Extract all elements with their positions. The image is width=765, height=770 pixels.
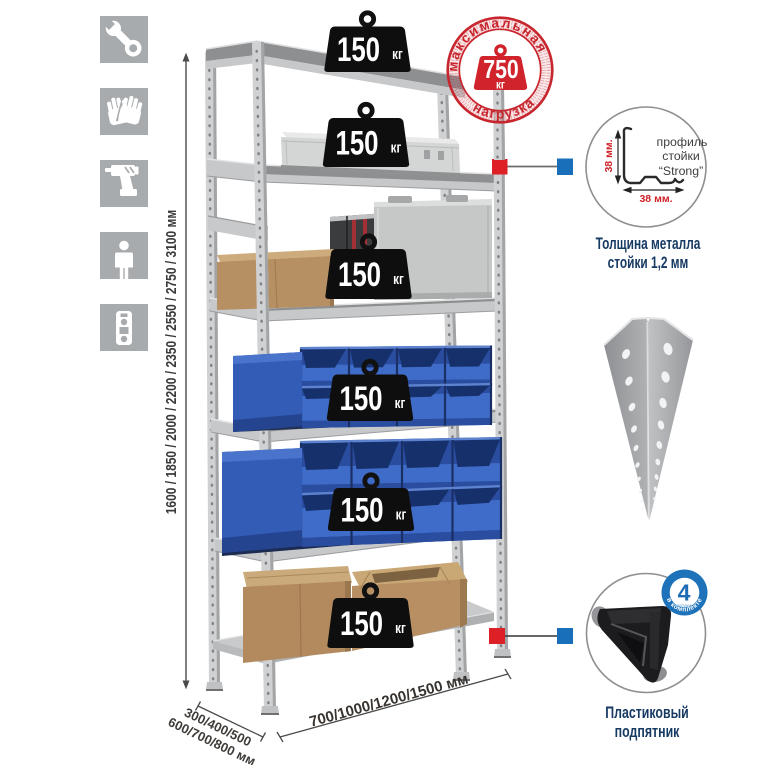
svg-text:1600 / 1850 / 2000 / 2200 / 23: 1600 / 1850 / 2000 / 2200 / 2350 / 2550 … xyxy=(163,210,180,515)
svg-text:150: 150 xyxy=(339,381,382,418)
svg-text:кг: кг xyxy=(395,620,406,637)
svg-text:4: 4 xyxy=(678,580,691,606)
svg-text:150: 150 xyxy=(338,257,381,294)
svg-text:профиль: профиль xyxy=(657,135,708,149)
svg-text:Толщина металла: Толщина металла xyxy=(596,235,702,253)
svg-text:кг: кг xyxy=(496,79,505,92)
svg-text:150: 150 xyxy=(335,125,378,162)
svg-text:кг: кг xyxy=(391,139,402,156)
svg-text:кг: кг xyxy=(396,506,407,523)
svg-text:150: 150 xyxy=(337,32,380,69)
svg-text:стойки: стойки xyxy=(662,149,700,163)
svg-text:“Strong”: “Strong” xyxy=(659,164,703,178)
svg-text:150: 150 xyxy=(340,492,383,529)
svg-text:стойки 1,2 мм: стойки 1,2 мм xyxy=(608,254,689,272)
svg-text:кг: кг xyxy=(393,271,404,288)
svg-text:38 мм.: 38 мм. xyxy=(603,139,615,172)
svg-text:Пластиковый: Пластиковый xyxy=(605,704,689,722)
svg-text:кг: кг xyxy=(392,46,403,63)
svg-text:150: 150 xyxy=(340,606,383,643)
svg-text:кг: кг xyxy=(395,395,406,412)
svg-text:38 мм.: 38 мм. xyxy=(639,193,672,205)
svg-text:подпятник: подпятник xyxy=(615,723,680,741)
